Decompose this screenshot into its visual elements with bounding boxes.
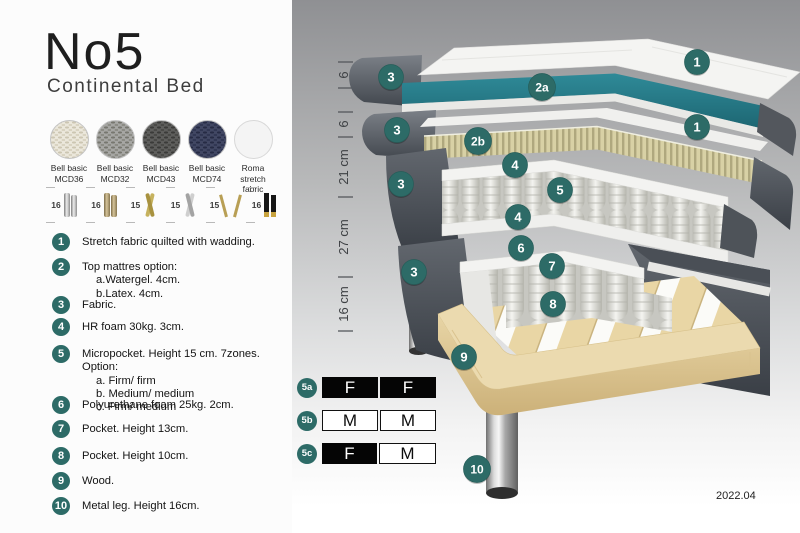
firmness-cell: M: [379, 443, 436, 464]
svg-text:1: 1: [693, 55, 700, 70]
swatch-label-line2: MCD74: [186, 174, 228, 185]
feature-item-2: 2 Top mattres option: a.Watergel. 4cm. b…: [52, 258, 296, 301]
swatch-label: Bell basic MCD43: [140, 163, 182, 184]
dimension-label: 6: [336, 120, 351, 127]
feature-number-badge: 1: [52, 233, 70, 251]
svg-text:4: 4: [514, 210, 522, 225]
svg-text:3: 3: [387, 70, 394, 85]
swatch-label-line2: MCD36: [48, 174, 90, 185]
callout-9: 9: [452, 345, 477, 372]
callout-5: 5: [548, 178, 573, 205]
feature-text: Polyurethane foam 25kg. 2cm.: [82, 396, 296, 412]
swatch-label-line1: Bell basic: [140, 163, 182, 174]
feature-text: Fabric.: [82, 296, 296, 312]
fabric-texture-icon: [50, 120, 89, 159]
feature-text: Pocket. Height 13cm.: [82, 420, 296, 436]
metal-leg-front-foot: [486, 487, 518, 499]
feature-main-text: Top mattres option:: [82, 261, 296, 274]
callout-4-bottom: 4: [506, 205, 531, 232]
feature-number-badge: 3: [52, 296, 70, 314]
callout-8: 8: [541, 292, 566, 319]
feature-item-4: 4 HR foam 30kg. 3cm.: [52, 318, 296, 336]
dimension-label: 21 cm: [336, 149, 351, 184]
left-column: No5 Continental Bed Bell basic MCD36 Bel…: [0, 0, 292, 533]
metal-leg-front: [486, 408, 518, 494]
svg-text:6: 6: [517, 241, 524, 256]
feature-number-badge: 10: [52, 497, 70, 515]
feature-item-10: 10 Metal leg. Height 16cm.: [52, 497, 296, 515]
callout-6: 6: [509, 236, 534, 263]
callout-2a: 2a: [529, 74, 556, 103]
firmness-cells: F F: [322, 377, 436, 398]
feature-text: Metal leg. Height 16cm.: [82, 497, 296, 513]
firmness-cell: M: [380, 410, 436, 431]
firmness-row-5a: 5a F F: [297, 377, 436, 398]
svg-text:3: 3: [397, 177, 404, 192]
feature-item-7: 7 Pocket. Height 13cm.: [52, 420, 296, 438]
svg-text:7: 7: [548, 259, 555, 274]
leg-height-label: 15: [171, 200, 180, 210]
version-label: 2022.04: [716, 490, 756, 502]
feature-number-badge: 6: [52, 396, 70, 414]
feature-number-badge: 7: [52, 420, 70, 438]
page: { "header": { "title": "No5", "subtitle"…: [0, 0, 800, 533]
feature-text: Wood.: [82, 472, 296, 488]
cylinder-silver-leg-icon: [64, 193, 77, 217]
fabric-texture-icon: [234, 120, 273, 159]
feature-number-badge: 2: [52, 258, 70, 276]
firmness-row-5b: 5b M M: [297, 410, 436, 431]
feature-number-badge: 8: [52, 447, 70, 465]
leg-option-hairpin: 15: [205, 186, 243, 224]
firmness-cell: F: [322, 443, 377, 464]
svg-text:8: 8: [549, 297, 556, 312]
leg-height-label: 15: [210, 200, 219, 210]
swatch-label-line2: MCD32: [94, 174, 136, 185]
fabric-swatch-mcd43: Bell basic MCD43: [140, 120, 182, 195]
callout-1-layer2: 1: [685, 115, 710, 142]
fabric-texture-icon: [142, 120, 181, 159]
cylinder-bronze-leg-icon: [104, 193, 117, 217]
callout-1-top: 1: [685, 50, 710, 77]
hairpin-leg-icon: [222, 194, 238, 217]
firmness-cells: M M: [322, 410, 436, 431]
svg-text:1: 1: [693, 120, 700, 135]
swatch-label-line2: MCD43: [140, 174, 182, 185]
callout-3-topper: 3: [379, 65, 404, 92]
firmness-cell: F: [322, 377, 378, 398]
swatch-label: Bell basic MCD32: [94, 163, 136, 184]
swatch-label-line1: Bell basic: [94, 163, 136, 174]
callout-7: 7: [540, 254, 565, 281]
fabric-swatch-mcd32: Bell basic MCD32: [94, 120, 136, 195]
leg-option-twisted-silver: 15: [165, 186, 203, 224]
feature-text: Top mattres option: a.Watergel. 4cm. b.L…: [82, 258, 296, 301]
callout-10: 10: [464, 456, 491, 485]
swatch-label-line1: Roma: [232, 163, 274, 174]
feature-suboption: a.Watergel. 4cm.: [96, 274, 296, 287]
fabric-swatch-roma: Roma stretch fabric: [232, 120, 274, 195]
leg-height-label: 16: [51, 200, 60, 210]
svg-text:5: 5: [556, 183, 563, 198]
callout-3-layer3: 3: [389, 172, 414, 199]
svg-text:4: 4: [511, 158, 519, 173]
svg-text:10: 10: [470, 463, 484, 477]
firmness-cell: F: [380, 377, 436, 398]
feature-number-badge: 5: [52, 345, 70, 363]
twisted-silver-leg-icon: [183, 193, 197, 217]
fabric-texture-icon: [96, 120, 135, 159]
firmness-cell: M: [322, 410, 378, 431]
dimension-label: 27 cm: [336, 219, 351, 254]
black-gold-leg-icon: [264, 193, 276, 217]
feature-number-badge: 4: [52, 318, 70, 336]
firmness-badge: 5c: [297, 444, 317, 464]
swatch-label: Bell basic MCD74: [186, 163, 228, 184]
firmness-cells: F M: [322, 443, 436, 464]
dimension-label: 16 cm: [336, 286, 351, 321]
swatch-label-line1: Bell basic: [186, 163, 228, 174]
svg-text:9: 9: [460, 350, 467, 365]
feature-main-text: Micropocket. Height 15 cm. 7zones. Optio…: [82, 348, 296, 375]
firmness-badge: 5b: [297, 411, 317, 431]
svg-text:3: 3: [393, 123, 400, 138]
leg-option-cylinder-silver: 16: [45, 186, 83, 224]
leg-option-black-gold: 16: [245, 186, 283, 224]
twisted-gold-leg-icon: [143, 193, 157, 217]
leg-option-twisted-gold: 15: [125, 186, 163, 224]
feature-text: Pocket. Height 10cm.: [82, 447, 296, 463]
firmness-row-5c: 5c F M: [297, 443, 436, 464]
svg-text:2b: 2b: [471, 135, 485, 149]
callout-3-layer2: 3: [385, 118, 410, 145]
fabric-swatch-mcd36: Bell basic MCD36: [48, 120, 90, 195]
feature-number-badge: 9: [52, 472, 70, 490]
leg-option-cylinder-bronze: 16: [85, 186, 123, 224]
fabric-swatch-mcd74: Bell basic MCD74: [186, 120, 228, 195]
feature-text: Stretch fabric quilted with wadding.: [82, 233, 296, 249]
firmness-badge: 5a: [297, 378, 317, 398]
feature-item-9: 9 Wood.: [52, 472, 296, 490]
dimension-label: 6: [336, 71, 351, 78]
page-title: No5: [44, 22, 145, 82]
callout-3-layer4: 3: [402, 260, 427, 287]
leg-height-label: 16: [252, 200, 261, 210]
feature-item-8: 8 Pocket. Height 10cm.: [52, 447, 296, 465]
feature-item-3: 3 Fabric.: [52, 296, 296, 314]
svg-text:2a: 2a: [535, 81, 549, 95]
feature-text: HR foam 30kg. 3cm.: [82, 318, 296, 334]
leg-height-label: 16: [91, 200, 100, 210]
page-subtitle: Continental Bed: [47, 76, 205, 98]
leg-height-label: 15: [131, 200, 140, 210]
right-panel: 6 6 21 cm 27 cm 16 cm: [292, 0, 800, 533]
feature-item-1: 1 Stretch fabric quilted with wadding.: [52, 233, 296, 251]
fabric-texture-icon: [188, 120, 227, 159]
leg-options: 16 16 15 15 15 16: [45, 186, 283, 224]
svg-text:3: 3: [410, 265, 417, 280]
callout-2b: 2b: [465, 128, 492, 157]
feature-item-6: 6 Polyurethane foam 25kg. 2cm.: [52, 396, 296, 414]
fabric-swatches: Bell basic MCD36 Bell basic MCD32 Bell b…: [48, 120, 274, 195]
swatch-label-line1: Bell basic: [48, 163, 90, 174]
callout-4-top: 4: [503, 153, 528, 180]
swatch-label: Bell basic MCD36: [48, 163, 90, 184]
feature-suboption: a. Firm/ firm: [96, 375, 296, 388]
